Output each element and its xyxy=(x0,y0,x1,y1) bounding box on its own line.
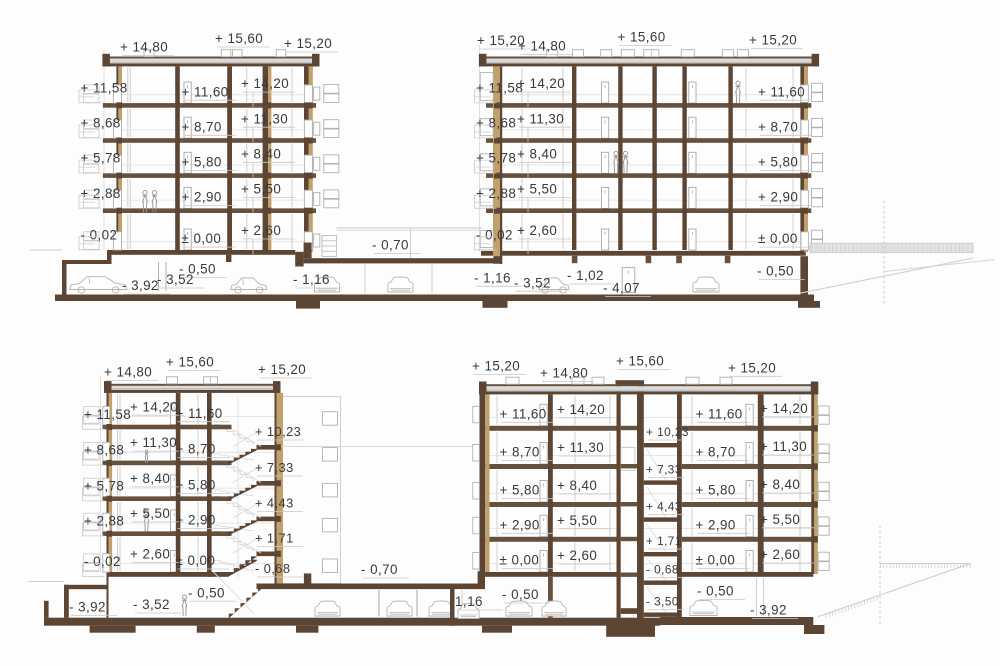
svg-text:+ 15,20: + 15,20 xyxy=(472,359,520,374)
svg-text:+ 5,78: + 5,78 xyxy=(81,151,121,166)
svg-text:+ 2,88: + 2,88 xyxy=(81,186,121,201)
svg-text:+ 11,30: + 11,30 xyxy=(517,111,564,126)
svg-text:+ 8,68: + 8,68 xyxy=(84,443,124,458)
svg-text:- 0,02: - 0,02 xyxy=(81,227,118,242)
svg-text:+ 11,30: + 11,30 xyxy=(760,439,807,454)
svg-text:+ 15,60: + 15,60 xyxy=(618,30,666,45)
svg-text:+ 5,50: + 5,50 xyxy=(760,512,800,527)
svg-text:+ 15,20: + 15,20 xyxy=(749,33,797,48)
svg-text:- 0,68: - 0,68 xyxy=(255,561,290,576)
svg-text:+ 8,40: + 8,40 xyxy=(760,477,800,492)
svg-text:- 3,52: - 3,52 xyxy=(514,275,551,290)
svg-text:+ 14,80: + 14,80 xyxy=(518,39,566,54)
svg-text:+ 2,88: + 2,88 xyxy=(476,186,516,201)
svg-text:+ 8,70: + 8,70 xyxy=(696,445,736,460)
svg-text:- 0,70: - 0,70 xyxy=(372,238,409,253)
svg-text:+ 2,60: + 2,60 xyxy=(760,547,800,562)
svg-text:- 0,02: - 0,02 xyxy=(476,227,513,242)
svg-text:+ 5,78: + 5,78 xyxy=(476,151,516,166)
svg-text:+ 11,30: + 11,30 xyxy=(557,440,604,455)
svg-text:+ 14,80: + 14,80 xyxy=(104,365,152,380)
svg-text:+ 5,50: + 5,50 xyxy=(130,506,170,521)
svg-text:+ 2,60: + 2,60 xyxy=(130,547,170,562)
svg-text:1,16: 1,16 xyxy=(455,594,483,609)
svg-text:- 3,52: - 3,52 xyxy=(133,597,170,612)
svg-text:+ 11,58: + 11,58 xyxy=(81,81,128,96)
svg-text:+ 15,60: + 15,60 xyxy=(215,31,263,46)
svg-text:+ 11,30: + 11,30 xyxy=(241,111,288,126)
svg-text:+ 14,80: + 14,80 xyxy=(540,366,588,381)
svg-text:- 1,02: - 1,02 xyxy=(567,268,604,283)
svg-text:- 0,70: - 0,70 xyxy=(361,562,398,577)
svg-text:+ 11,60: + 11,60 xyxy=(182,84,229,99)
svg-text:+ 10,23: + 10,23 xyxy=(646,425,689,439)
svg-text:+ 7,33: + 7,33 xyxy=(646,463,682,477)
svg-text:+ 8,40: + 8,40 xyxy=(517,146,557,161)
svg-text:+ 5,50: + 5,50 xyxy=(517,182,557,197)
svg-text:+ 5,80: + 5,80 xyxy=(758,155,798,170)
svg-text:+ 5,78: + 5,78 xyxy=(84,479,124,494)
svg-text:- 0,50: - 0,50 xyxy=(697,584,734,599)
svg-text:± 0,00: ± 0,00 xyxy=(758,231,798,246)
svg-text:+ 14,20: + 14,20 xyxy=(130,399,178,414)
svg-text:+ 5,80: + 5,80 xyxy=(176,478,216,493)
svg-text:+ 15,20: + 15,20 xyxy=(258,362,306,377)
svg-text:± 0,00: ± 0,00 xyxy=(696,553,736,568)
svg-text:± 0,00: ± 0,00 xyxy=(500,553,540,568)
svg-text:+ 2,88: + 2,88 xyxy=(84,514,124,529)
svg-text:+ 8,70: + 8,70 xyxy=(176,442,216,457)
svg-text:+ 5,50: + 5,50 xyxy=(557,513,597,528)
svg-text:+ 11,60: + 11,60 xyxy=(500,406,547,421)
svg-text:± 0,00: ± 0,00 xyxy=(176,553,216,568)
svg-text:+ 8,68: + 8,68 xyxy=(81,116,121,131)
svg-text:- 0,02: - 0,02 xyxy=(84,554,121,569)
svg-text:+ 8,70: + 8,70 xyxy=(182,119,222,134)
svg-text:+ 4,43: + 4,43 xyxy=(255,496,294,511)
svg-text:+ 14,80: + 14,80 xyxy=(120,40,168,55)
svg-text:+ 10,23: + 10,23 xyxy=(255,424,301,439)
svg-text:+ 14,20: + 14,20 xyxy=(241,76,289,91)
svg-text:- 3,52: - 3,52 xyxy=(157,272,194,287)
svg-text:+ 1,71: + 1,71 xyxy=(646,534,682,548)
svg-text:+ 5,80: + 5,80 xyxy=(182,155,222,170)
svg-text:+ 2,90: + 2,90 xyxy=(758,190,798,205)
svg-text:+ 11,60: + 11,60 xyxy=(176,406,223,421)
svg-text:+ 11,60: + 11,60 xyxy=(696,406,743,421)
svg-text:+ 11,58: + 11,58 xyxy=(84,407,131,422)
svg-text:- 0,50: - 0,50 xyxy=(757,264,794,279)
svg-text:+ 14,20: + 14,20 xyxy=(760,401,808,416)
svg-text:- 3,92: - 3,92 xyxy=(750,603,787,618)
svg-text:+ 2,60: + 2,60 xyxy=(517,223,557,238)
svg-text:+ 15,20: + 15,20 xyxy=(728,360,776,375)
svg-text:+ 7,33: + 7,33 xyxy=(255,460,294,475)
svg-text:+ 14,20: + 14,20 xyxy=(517,76,565,91)
svg-text:+ 8,40: + 8,40 xyxy=(241,146,281,161)
svg-text:- 1,16: - 1,16 xyxy=(293,272,330,287)
svg-text:+ 8,68: + 8,68 xyxy=(476,116,516,131)
svg-text:- 3,92: - 3,92 xyxy=(69,600,106,615)
svg-text:+ 15,60: + 15,60 xyxy=(616,354,664,369)
svg-text:+ 15,20: + 15,20 xyxy=(284,36,332,51)
svg-text:+ 2,60: + 2,60 xyxy=(557,548,597,563)
svg-text:+ 2,90: + 2,90 xyxy=(696,517,736,532)
svg-text:- 0,50: - 0,50 xyxy=(502,587,539,602)
svg-text:+ 8,40: + 8,40 xyxy=(130,471,170,486)
svg-text:+ 2,90: + 2,90 xyxy=(176,513,216,528)
svg-text:- 4,07: - 4,07 xyxy=(603,281,640,296)
svg-text:+ 8,70: + 8,70 xyxy=(500,445,540,460)
svg-text:+ 5,80: + 5,80 xyxy=(696,483,736,498)
svg-text:+ 4,43: + 4,43 xyxy=(646,500,682,514)
svg-text:- 0,68: - 0,68 xyxy=(646,563,679,577)
svg-text:+ 2,90: + 2,90 xyxy=(182,190,222,205)
svg-text:- 3,92: - 3,92 xyxy=(122,278,159,293)
svg-text:+ 11,60: + 11,60 xyxy=(758,84,805,99)
svg-text:+ 2,90: + 2,90 xyxy=(500,517,540,532)
svg-text:+ 11,30: + 11,30 xyxy=(130,435,177,450)
svg-text:- 0,50: - 0,50 xyxy=(188,585,225,600)
svg-text:+ 8,40: + 8,40 xyxy=(557,478,597,493)
svg-text:+ 5,50: + 5,50 xyxy=(241,182,281,197)
svg-text:± 0,00: ± 0,00 xyxy=(182,231,222,246)
svg-text:- 3,50: - 3,50 xyxy=(646,595,679,609)
svg-text:+ 14,20: + 14,20 xyxy=(557,402,605,417)
svg-text:- 1,16: - 1,16 xyxy=(474,270,511,285)
svg-text:+ 15,60: + 15,60 xyxy=(166,355,214,370)
svg-text:+ 2,60: + 2,60 xyxy=(241,223,281,238)
svg-text:+ 1,71: + 1,71 xyxy=(255,531,294,546)
svg-text:+ 8,70: + 8,70 xyxy=(758,119,798,134)
svg-text:+ 5,80: + 5,80 xyxy=(500,483,540,498)
